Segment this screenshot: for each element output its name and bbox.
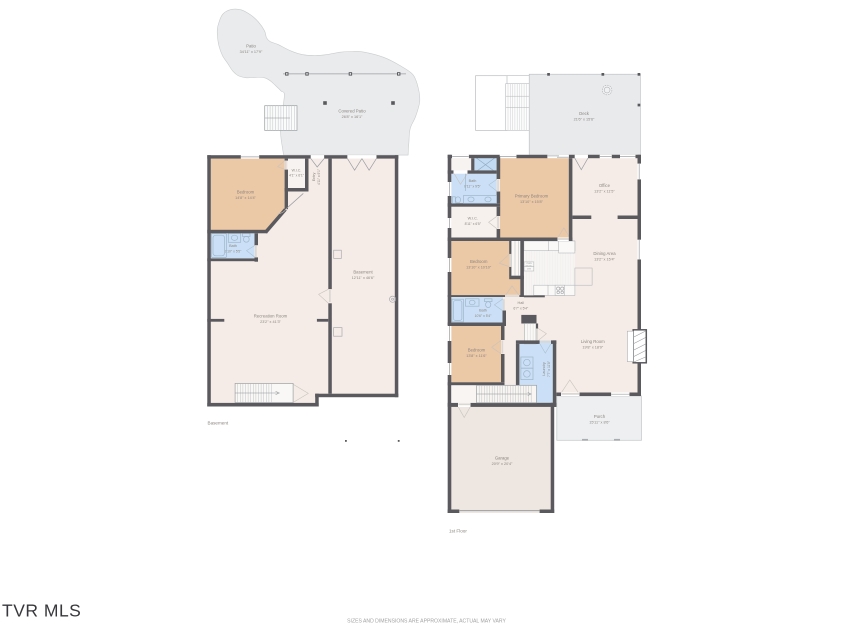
svg-text:4'1" x 6'1": 4'1" x 6'1" [289, 174, 305, 178]
svg-text:Primary Bedroom: Primary Bedroom [515, 194, 549, 199]
svg-text:Laundry: Laundry [542, 362, 546, 375]
svg-text:20'9" x 20'4": 20'9" x 20'4" [492, 462, 513, 466]
svg-text:13'2" x 11'5": 13'2" x 11'5" [594, 190, 615, 194]
svg-text:TVR MLS: TVR MLS [2, 601, 81, 621]
svg-text:7'7" x 11'8": 7'7" x 11'8" [547, 360, 551, 377]
svg-text:15'11" x 8'6": 15'11" x 8'6" [589, 420, 610, 424]
svg-text:8'11" x 6'5": 8'11" x 6'5" [465, 222, 482, 226]
svg-text:9'10" x 5'5": 9'10" x 5'5" [225, 249, 243, 253]
svg-text:Entry: Entry [312, 173, 316, 182]
svg-text:Recreation Room: Recreation Room [254, 314, 288, 319]
svg-text:19'8" x 18'9": 19'8" x 18'9" [582, 346, 603, 350]
svg-text:4'11" x 9'1": 4'11" x 9'1" [317, 168, 321, 185]
svg-text:14'8" x 14'4": 14'8" x 14'4" [235, 196, 256, 200]
svg-text:Office: Office [599, 183, 611, 188]
svg-text:26'8" x 16'1": 26'8" x 16'1" [342, 115, 363, 119]
svg-text:21'6" x 15'6": 21'6" x 15'6" [574, 118, 595, 122]
svg-text:12'11" x 46'6": 12'11" x 46'6" [352, 276, 375, 280]
svg-text:34'11" x 17'9": 34'11" x 17'9" [240, 50, 263, 54]
svg-text:13'8" x 11'6": 13'8" x 11'6" [466, 354, 487, 358]
svg-text:Basement: Basement [208, 421, 229, 426]
svg-text:13'10" x 15'8": 13'10" x 15'8" [520, 200, 544, 204]
svg-text:Garage: Garage [495, 456, 510, 461]
svg-text:Hall: Hall [518, 301, 525, 305]
svg-text:10'6" x 5'4": 10'6" x 5'4" [475, 314, 493, 318]
svg-text:Covered Patio: Covered Patio [338, 109, 366, 114]
svg-text:W.I.C.: W.I.C. [292, 169, 302, 173]
svg-text:Basement: Basement [353, 270, 373, 275]
svg-text:Bath: Bath [469, 179, 477, 183]
svg-text:Bedroom: Bedroom [237, 190, 255, 195]
svg-text:Patio: Patio [246, 44, 256, 49]
svg-text:13'2" x 15'4": 13'2" x 15'4" [594, 258, 615, 262]
svg-text:SIZES AND DIMENSIONS ARE APPRO: SIZES AND DIMENSIONS ARE APPROXIMATE, AC… [347, 619, 506, 625]
svg-text:MICRO: MICRO [526, 265, 533, 267]
svg-text:Living Room: Living Room [581, 339, 605, 344]
svg-text:6'7" x 5'4": 6'7" x 5'4" [513, 306, 529, 310]
svg-text:Bedroom: Bedroom [468, 348, 486, 353]
svg-text:Deck: Deck [579, 111, 590, 116]
svg-text:Bedroom: Bedroom [470, 259, 488, 264]
svg-text:Bath: Bath [479, 309, 487, 313]
svg-text:1st Floor: 1st Floor [449, 529, 467, 534]
svg-text:Dining Area: Dining Area [593, 251, 616, 256]
svg-text:D/W: D/W [527, 269, 531, 271]
svg-text:8'11" x 9'5": 8'11" x 9'5" [464, 184, 481, 188]
svg-text:23'2" x 41'3": 23'2" x 41'3" [260, 320, 281, 324]
svg-text:Bath: Bath [229, 244, 237, 248]
svg-text:Porch: Porch [594, 414, 606, 419]
svg-text:W.I.C.: W.I.C. [468, 217, 478, 221]
svg-text:13'10" x 10'10": 13'10" x 10'10" [466, 265, 492, 269]
